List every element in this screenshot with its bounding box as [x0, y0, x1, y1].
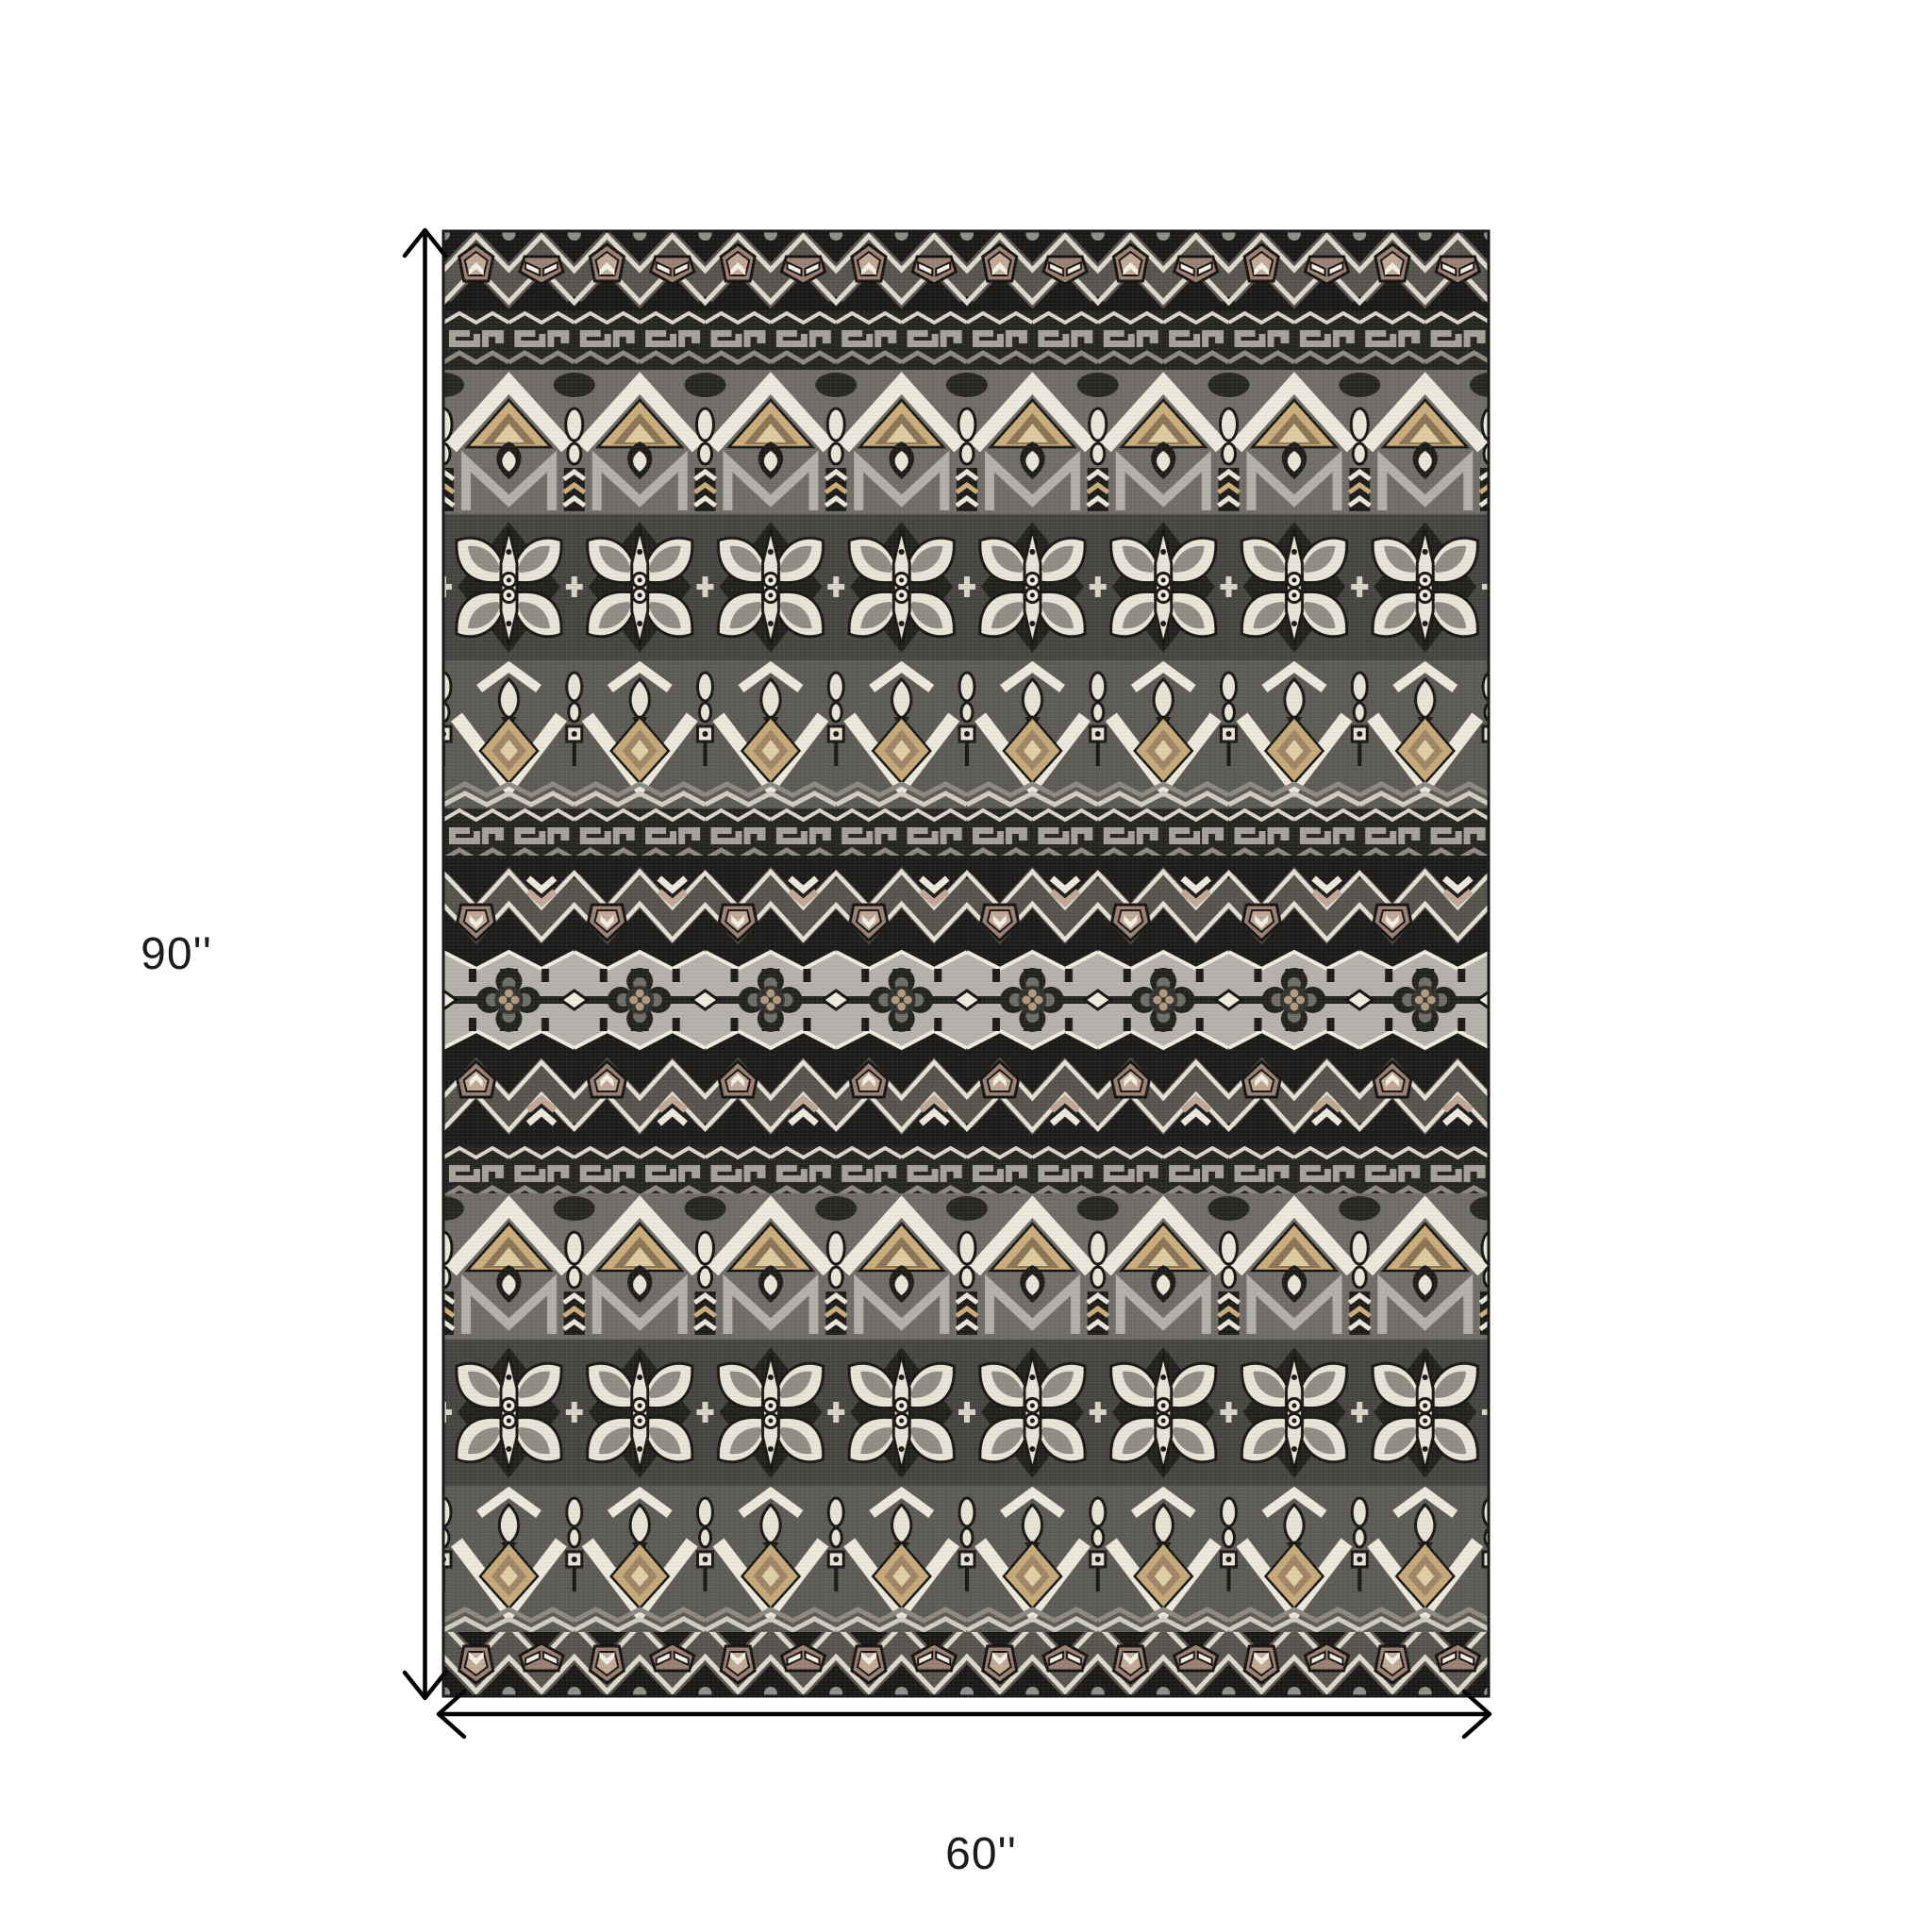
rug-band-greek-key [443, 311, 1489, 370]
rug-pattern-bands [443, 231, 1489, 1696]
rug-image [0, 0, 1932, 1932]
rug-band-diamond-peaks [443, 1193, 1489, 1340]
rug-band-greek-key-narrow [443, 1146, 1489, 1193]
rug-band-pentagon-zigzag-bottom [443, 1632, 1489, 1696]
rug-band-butterfly-medallions [443, 1340, 1489, 1486]
rug-band-pentagon-zigzag [443, 231, 1489, 311]
height-dimension-label: 90'' [110, 930, 242, 980]
width-dimension-line [439, 1691, 1490, 1737]
rug-band-drop-valleys [443, 1486, 1489, 1632]
rug-band-shield-zigzag-down [443, 856, 1489, 946]
rug-band-shield-zigzag-up [443, 1054, 1489, 1146]
rug-band-drop-valleys [443, 660, 1489, 808]
rug-band-greek-key-narrow [443, 808, 1489, 856]
rug-band-butterfly-medallions [443, 514, 1489, 660]
width-dimension-label: 60'' [915, 1830, 1047, 1880]
rug-band-rosette-center [443, 946, 1489, 1054]
rug-band-diamond-peaks [443, 370, 1489, 514]
height-dimension-line [405, 230, 445, 1698]
